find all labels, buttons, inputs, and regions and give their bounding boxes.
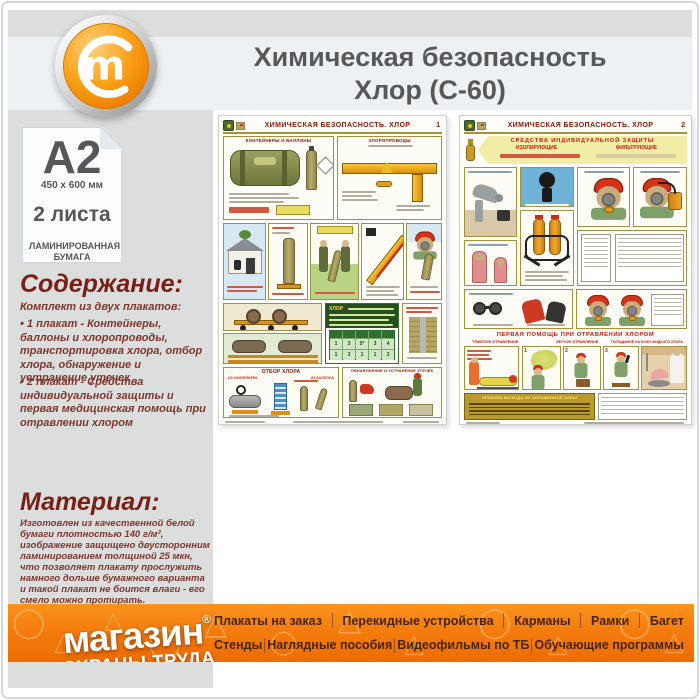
logo-monogram-icon: m — [64, 24, 148, 108]
product-page: Химическая безопасность Хлор (С-60) m А2… — [0, 0, 700, 700]
filter-canister — [668, 192, 682, 210]
footer-brand-logo[interactable]: магазин® ОХРАНЫ ТРУДА — [30, 604, 244, 662]
mask-size-table — [581, 234, 611, 282]
section-pipes-title: ХЛОРОПРОВОДЫ — [338, 138, 441, 144]
leak-fix-pic — [349, 404, 373, 416]
menu-item-pockets[interactable]: Карманы — [514, 614, 570, 628]
floor-line — [612, 383, 630, 387]
panel-breathing-apparatus — [520, 210, 574, 286]
fake-text — [342, 195, 372, 197]
contents-intro: Комплект из двух плакатов: — [20, 301, 205, 314]
menu-separator — [639, 613, 640, 628]
roof — [226, 238, 264, 251]
section-containers: КОНТЕЙНЕРЫ И БАЛЛОНЫ — [223, 136, 334, 220]
worker-head — [342, 240, 349, 247]
fake-text — [272, 293, 304, 295]
menu-item-frames[interactable]: Рамки — [591, 614, 629, 628]
mask-spec-table — [615, 234, 684, 282]
caption-line — [403, 421, 439, 423]
cylinder-on-trolley — [283, 238, 295, 284]
apparatus-body — [542, 188, 552, 202]
poster-logo-icon — [464, 120, 475, 131]
warning-strip — [229, 207, 269, 213]
poster1-content: КОНТЕЙНЕРЫ И БАЛЛОНЫ ХЛОРОПРОВОДЫ — [223, 136, 442, 420]
footer-menu-row-1: Плакаты на заказ Перекидные устройства К… — [214, 613, 684, 628]
poster-table-icon — [236, 122, 245, 130]
pressure-gauge-icon — [236, 385, 246, 395]
rescuer-orange-suit — [469, 361, 479, 385]
absorber-column — [274, 383, 287, 410]
doctor-figure — [670, 353, 684, 383]
container-band — [240, 151, 245, 185]
section-leaks-title: ОБНАРУЖЕНИЕ И УСТРАНЕНИЕ УТЕЧЕК — [343, 369, 441, 374]
wheel — [240, 325, 246, 331]
rail — [228, 360, 318, 363]
wheel — [268, 325, 274, 331]
section-pipes: ХЛОРОПРОВОДЫ — [337, 136, 442, 220]
container-label — [254, 157, 276, 165]
fake-text — [525, 279, 567, 281]
cylinder-upright — [300, 386, 308, 411]
first-aid-title: ПЕРВАЯ ПОМОЩЬ ПРИ ОТРАВЛЕНИИ ХЛОРОМ — [464, 332, 687, 338]
bottle-body — [466, 145, 475, 161]
panel-house-scene — [223, 223, 266, 300]
caption-line — [466, 422, 500, 424]
section-leaks: ОБНАРУЖЕНИЕ И УСТРАНЕНИЕ УТЕЧЕК — [342, 367, 442, 418]
poster1-title: ХИМИЧЕСКАЯ БЕЗОПАСНОСТЬ. ХЛОР — [247, 122, 428, 129]
panel-chlor-info: ХЛОР 1 3 5* 3 4 1 3 1 1 3 — [325, 303, 399, 364]
panel-truck-transport — [223, 303, 322, 331]
fake-text — [469, 293, 513, 295]
material-heading: Материал: — [20, 488, 159, 517]
scene-sitting: 2 — [563, 346, 601, 390]
sip-banner: СРЕДСТВА ИНДИВИДУАЛЬНОЙ ЗАЩИТЫ ИЗОЛИРУЮЩ… — [478, 136, 687, 164]
panel-industrial-masks — [576, 289, 687, 329]
registered-mark-icon: ® — [202, 612, 211, 627]
fake-text — [342, 191, 376, 193]
yellow-note — [276, 205, 310, 215]
fake-text — [407, 357, 437, 359]
red-slope-line — [376, 240, 404, 277]
rail — [228, 355, 318, 358]
fake-text — [527, 324, 565, 326]
concentration-table — [598, 393, 687, 420]
page-title: Химическая безопасность Хлор (С-60) — [160, 41, 700, 107]
chlorine-cloud — [239, 230, 251, 239]
phone-handset-icon — [625, 355, 630, 364]
scene-number: 3 — [605, 348, 608, 354]
scene-phone: 3 — [603, 346, 639, 390]
suit-visor — [497, 259, 504, 266]
fake-text — [229, 193, 289, 195]
footer-menu: Плакаты на заказ Перекидные устройства К… — [214, 604, 684, 662]
skin-label: ПОПАДАНИЕ НА КОЖУ ЖИДКОГО ХЛОРА — [611, 340, 683, 344]
bending-worker-legs — [475, 200, 483, 222]
menu-item-safety-videos[interactable]: Видеофильмы по ТБ — [397, 638, 529, 652]
yellow-sign — [317, 226, 353, 234]
responder-figure — [413, 378, 422, 396]
isolating-label: ИЗОЛИРУЮЩИЕ — [516, 145, 557, 151]
worker-head — [320, 240, 327, 247]
fake-text — [525, 204, 569, 206]
filtering-label: ФИЛЬТРУЮЩИЕ — [616, 145, 657, 151]
menu-item-flip-systems[interactable]: Перекидные устройства — [342, 614, 493, 628]
fake-text — [272, 227, 294, 229]
barrel-end — [272, 309, 287, 324]
fake-text — [294, 380, 318, 382]
scene-stretcher — [464, 346, 519, 390]
wall-column — [409, 317, 420, 353]
poster-thumbnail-1[interactable]: ХИМИЧЕСКАЯ БЕЗОПАСНОСТЬ. ХЛОР 1 КОНТЕЙНЕ… — [218, 115, 447, 425]
hazard-placard-icon — [316, 156, 334, 174]
victim-head — [509, 375, 517, 383]
exit-rules-panel: ПРАВИЛА ВЫХОДА ИЗ ЗАРАЖЕННОЙ ЗОНЫ — [464, 393, 595, 420]
menu-item-stands[interactable]: Стенды — [214, 638, 262, 652]
basin — [648, 380, 670, 387]
wheel — [292, 325, 298, 331]
contents-heading: Содержание: — [20, 270, 183, 299]
leak-cylinder — [349, 380, 357, 402]
size-label: 450 x 600 мм — [23, 180, 121, 191]
fake-text — [406, 307, 438, 309]
victim-figure — [531, 365, 545, 390]
shop-logo[interactable]: m — [55, 15, 157, 117]
sip-banner-title: СРЕДСТВА ИНДИВИДУАЛЬНОЙ ЗАЩИТЫ — [478, 138, 687, 145]
fake-text — [227, 290, 257, 292]
fake-text — [525, 271, 569, 273]
panel-carrying-cylinder — [310, 223, 359, 300]
panel-hand-truck — [268, 223, 308, 300]
fake-text — [406, 311, 432, 313]
cylinder-tilted — [315, 387, 328, 410]
panel-gasmask-2 — [633, 167, 687, 227]
shop-logo-disc: m — [63, 23, 149, 109]
fake-text — [368, 145, 413, 147]
fake-text — [366, 290, 394, 292]
menu-separator — [394, 638, 395, 653]
exit-rules-title: ПРАВИЛА ВЫХОДА ИЗ ЗАРАЖЕННОЙ ЗОНЫ — [465, 395, 594, 401]
fake-text — [329, 314, 395, 316]
section-selection-title: ОТБОР ХЛОРА — [224, 369, 338, 375]
panel-mask-table — [577, 230, 687, 286]
note-line — [596, 154, 676, 158]
pipe-marker — [376, 181, 392, 187]
menu-item-baguette[interactable]: Багет — [650, 614, 684, 628]
caption-line — [225, 421, 265, 423]
panel-rail-transport — [223, 333, 322, 364]
fake-text — [366, 286, 400, 288]
doorway — [246, 258, 255, 274]
pipe-branch — [412, 174, 423, 202]
filter-table — [651, 294, 684, 326]
poster2-title: ХИМИЧЕСКАЯ БЕЗОПАСНОСТЬ. ХЛОР — [488, 122, 673, 129]
caption-line — [293, 421, 383, 423]
worker-figure — [341, 246, 350, 272]
page-title-line1: Химическая безопасность — [160, 41, 700, 74]
panel-gasmask-1 — [577, 167, 630, 227]
gasmask-small — [619, 295, 645, 326]
poster2-content: СРЕДСТВА ИНДИВИДУАЛЬНОЙ ЗАЩИТЫ ИЗОЛИРУЮЩ… — [464, 136, 687, 420]
from-container-label: ИЗ КОНТЕЙНЕРА — [228, 376, 257, 380]
panel-hazmat-suits — [464, 240, 517, 286]
fake-text — [640, 171, 680, 173]
fake-text — [396, 209, 424, 211]
poster2-number: 2 — [681, 122, 685, 129]
svg-text:m: m — [83, 42, 126, 90]
patient-figure — [649, 368, 668, 381]
fake-text — [468, 171, 512, 173]
cylinder-valve — [309, 146, 314, 151]
panel-protective-suit — [464, 167, 517, 237]
black-glove-icon — [545, 300, 567, 323]
solubility-table: 1 3 5* 3 4 1 3 1 1 3 — [329, 330, 395, 360]
apparatus-mask — [539, 172, 555, 188]
paper-type-label: ЛАМИНИРОВАННАЯ БУМАГА — [23, 241, 121, 263]
chlor-word: ХЛОР — [329, 306, 343, 312]
sitting-figure — [574, 353, 588, 379]
rubber-glove — [360, 384, 374, 394]
shower-pipe — [646, 353, 648, 371]
sheets-label: 2 листа — [23, 203, 121, 227]
poster-logo-icon — [223, 120, 234, 131]
warning-triangle-icon — [381, 162, 393, 173]
paper-fold-cut — [100, 127, 122, 149]
fake-text — [468, 244, 508, 246]
material-text: Изготовлен из качественной белой бумаги … — [20, 518, 210, 606]
cylinder-cap — [535, 215, 543, 219]
panel-respirator-worker — [406, 223, 442, 300]
goggles-bridge — [485, 306, 491, 309]
responder-helmet — [414, 373, 421, 378]
fake-text — [467, 354, 489, 356]
section-selection: ОТБОР ХЛОРА ИЗ КОНТЕЙНЕРА ИЗ БАЛЛОНА — [223, 367, 339, 418]
panel-wall-duct — [402, 303, 442, 364]
fake-text — [229, 197, 299, 199]
wall-column — [426, 317, 437, 353]
leak-fix-pic — [379, 404, 403, 416]
stretcher-pole — [477, 387, 519, 389]
caption-line — [584, 422, 684, 424]
menu-item-visual-aids[interactable]: Наглядные пособия — [267, 638, 392, 652]
container-barrel — [232, 340, 266, 353]
cylinder-cap — [551, 215, 559, 219]
barrel-end — [246, 309, 261, 324]
fake-text — [348, 308, 394, 310]
menu-separator — [580, 613, 581, 628]
severe-label: ТЯЖЕЛОЕ ОТРАВЛЕНИЕ — [472, 340, 518, 344]
footer-menu-row-2: Стенды Наглядные пособия Видеофильмы по … — [214, 638, 684, 653]
poster-table-icon — [477, 122, 486, 130]
leak-barrel — [385, 386, 413, 400]
scene-number: 1 — [524, 348, 527, 354]
menu-separator — [332, 613, 333, 628]
fake-text — [315, 292, 355, 294]
menu-separator — [264, 638, 265, 653]
page-title-line2: Хлор (С-60) — [160, 74, 700, 107]
scene-gas-cloud: 1 — [522, 346, 561, 390]
fake-text — [342, 199, 378, 201]
stool — [576, 379, 590, 387]
panel-pipe-slope — [361, 223, 404, 300]
worker-figure — [319, 246, 328, 272]
paper-format-card: А2 450 x 600 мм 2 листа ЛАМИНИРОВАННАЯ Б… — [22, 127, 122, 263]
fake-text — [467, 350, 491, 352]
panel-goggles-gloves — [464, 289, 573, 329]
fake-text — [229, 415, 279, 417]
rescuer-head — [471, 357, 478, 363]
section-containers-title: КОНТЕЙНЕРЫ И БАЛЛОНЫ — [224, 138, 333, 144]
fake-text — [329, 319, 389, 321]
info-sidebar: А2 450 x 600 мм 2 листа ЛАМИНИРОВАННАЯ Б… — [8, 110, 213, 688]
fake-text — [525, 275, 563, 277]
gas-cylinder-illustration — [306, 150, 317, 190]
poster-thumbnail-2[interactable]: ХИМИЧЕСКАЯ БЕЗОПАСНОСТЬ. ХЛОР 2 СРЕДСТВА… — [459, 115, 692, 425]
fake-text — [410, 291, 440, 293]
gauge-figure — [234, 260, 241, 270]
suit-visor — [475, 253, 484, 261]
menu-separator — [503, 613, 504, 628]
gasmask-illustration — [591, 178, 626, 220]
menu-item-posters[interactable]: Плакаты на заказ — [214, 614, 322, 628]
fake-text — [410, 286, 438, 288]
fake-text — [366, 294, 398, 296]
contents-item-2: • 2 плакат - Средства индивидуальной защ… — [20, 376, 208, 430]
bucket — [497, 210, 510, 221]
fake-text — [227, 286, 263, 288]
scene-number: 2 — [565, 348, 568, 354]
fake-text — [329, 324, 393, 326]
evaporator-tank — [229, 395, 261, 408]
gasmask-small — [585, 295, 611, 326]
red-glove-icon — [521, 298, 546, 324]
wall-gap — [420, 317, 426, 353]
fake-text — [473, 324, 513, 326]
fake-text — [584, 171, 624, 173]
scene-washing — [641, 346, 687, 390]
tank-stand — [232, 410, 258, 414]
sloped-pipe — [366, 235, 404, 286]
leak-fix-pic — [409, 404, 433, 416]
container-barrel — [278, 340, 312, 353]
fake-text — [272, 232, 290, 234]
panel-diving-apparatus — [520, 167, 574, 207]
menu-item-training-programs[interactable]: Обучающие программы — [534, 638, 684, 652]
bending-worker-head — [495, 194, 503, 202]
poster2-titlebar: ХИМИЧЕСКАЯ БЕЗОПАСНОСТЬ. ХЛОР 2 — [464, 119, 687, 134]
fake-text — [396, 205, 430, 207]
trolley-base — [277, 284, 301, 289]
gold-bottle-icon — [465, 137, 476, 163]
poster1-titlebar: ХИМИЧЕСКАЯ БЕЗОПАСНОСТЬ. ХЛОР 1 — [223, 119, 442, 134]
doctor-head — [673, 349, 681, 356]
poster1-number: 1 — [436, 122, 440, 129]
fake-text — [229, 201, 284, 203]
light-label: ЛЕГКОЕ ОТРАВЛЕНИЕ — [556, 340, 598, 344]
chlor-text-block: ХЛОР — [326, 304, 398, 328]
menu-separator — [531, 638, 532, 653]
red-note — [500, 154, 580, 158]
container-band — [282, 151, 287, 185]
footer-bar: ◯ △ △ ◯ △ ◯ △ △ ◯ △ ◯ △ магазин® ОХРАНЫ … — [8, 604, 694, 662]
bracket — [366, 228, 376, 236]
